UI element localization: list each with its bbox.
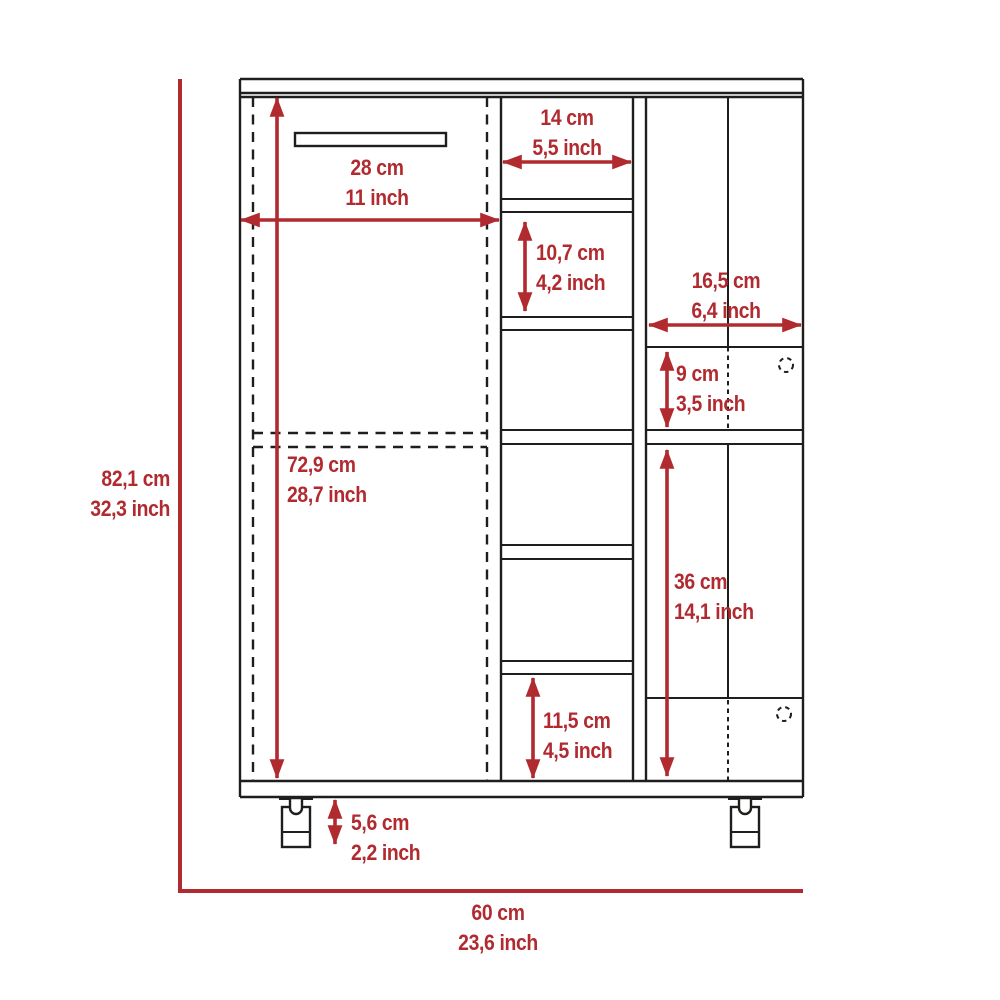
right-section [646,97,803,781]
door-knob-bottom-icon [777,707,791,721]
dim-right-cubby-height-label: 9 cm 3,5 inch [676,359,745,419]
dim-cubby-height-label: 10,7 cm 4,2 inch [536,238,605,298]
dim-caster-height-label: 5,6 cm 2,2 inch [351,808,420,868]
caster-stem [739,798,751,814]
caster-right [728,796,762,847]
caster-left [279,796,313,847]
dim-right-section-width-label: 16,5 cm 6,4 inch [638,266,814,326]
dim-cubby-width-label: 14 cm 5,5 inch [479,103,655,163]
dim-right-door-height-label: 36 cm 14,1 inch [674,567,754,627]
dim-door-height-label: 72,9 cm 28,7 inch [287,450,367,510]
dimension-lines [180,79,803,891]
furniture-dimension-diagram: 14 cm 5,5 inch 10,7 cm 4,2 inch 28 cm 11… [0,0,1000,1000]
dim-cabinet-width-label: 60 cm 23,6 inch [410,898,586,958]
caster-stem [290,798,302,814]
overall-dimension-bracket [180,79,803,891]
dim-cabinet-height-label: 82,1 cm 32,3 inch [38,464,170,524]
door-handle [295,133,446,146]
hidden-shelf-dashed-lines [253,433,487,447]
dim-door-width-label: 28 cm 11 inch [289,153,465,213]
door-knob-top-icon [779,358,793,372]
dim-bottom-cubby-height-label: 11,5 cm 4,5 inch [543,706,612,766]
